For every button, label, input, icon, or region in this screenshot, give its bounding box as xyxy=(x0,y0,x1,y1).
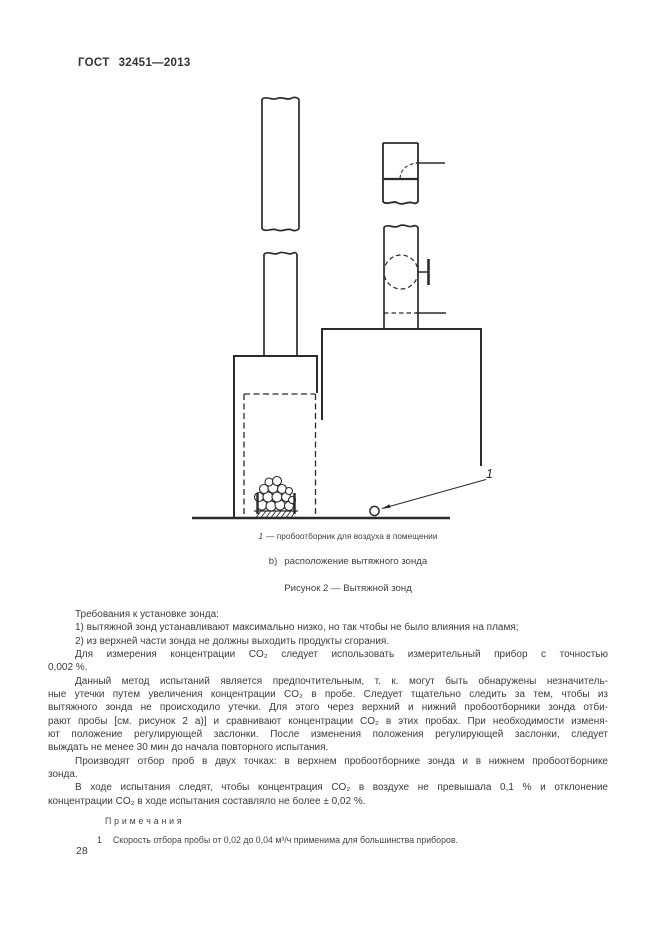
callout-arrow xyxy=(381,480,486,510)
figure-2b-drawing: 1 xyxy=(160,85,520,605)
basket-tray xyxy=(254,511,298,518)
figure-key-text: — пробоотборник для воздуха в помещении xyxy=(266,531,437,541)
body-line: зонда. xyxy=(48,768,608,781)
body-line: выждать не менее 30 мин до начала повтор… xyxy=(48,741,608,754)
room-air-sampler-circle xyxy=(370,506,379,515)
pebbles xyxy=(255,477,296,512)
chimney-upper-segment xyxy=(262,97,299,230)
body-line: концентрации CO₂ в ходе испытания состав… xyxy=(48,795,608,808)
body-line: Производят отбор проб в двух точках: в в… xyxy=(48,755,608,768)
damper-handle xyxy=(418,259,429,285)
figure-sublabel-title: расположение вытяжного зонда xyxy=(284,556,427,567)
body-line: 0,002 %. xyxy=(48,661,608,674)
body-line: Для измерения концентрации CO₂ следует и… xyxy=(48,648,608,661)
figure-key: 1— пробоотборник для воздуха в помещении xyxy=(88,531,608,541)
body-line: вытяжного зонда не происходило утечки. Д… xyxy=(48,701,608,714)
body-line: В ходе испытания следят, чтобы концентра… xyxy=(48,781,608,794)
chimney-lower-segment xyxy=(264,252,297,356)
body-line: 1) вытяжной зонд устанавливают максималь… xyxy=(48,621,608,634)
figure-caption: Рисунок 2 — Вытяжной зонд xyxy=(88,583,608,594)
notes-heading: П р и м е ч а н и я xyxy=(105,815,608,827)
fire-basket xyxy=(254,477,298,518)
standard-label: ГОСТ xyxy=(78,57,110,69)
figure-sublabel: b)расположение вытяжного зонда xyxy=(88,556,608,567)
page-number: 28 xyxy=(76,845,88,857)
document-page: ГОСТ32451—2013 xyxy=(0,0,661,936)
figure-key-number: 1 xyxy=(259,531,264,541)
note-text: Скорость отбора пробы от 0,02 до 0,04 м³… xyxy=(113,835,458,845)
body-line: Данный метод испытаний является предпочт… xyxy=(48,675,608,688)
standard-number: 32451—2013 xyxy=(119,57,191,69)
exhaust-duct-upper xyxy=(383,143,418,204)
body-text: Требования к установке зонда: 1) вытяжно… xyxy=(48,608,608,846)
note-item: 1Скорость отбора пробы от 0,02 до 0,04 м… xyxy=(97,834,608,846)
body-line: Требования к установке зонда: xyxy=(48,608,608,621)
callout-label: 1 xyxy=(486,467,493,481)
upper-sampling-probe xyxy=(400,163,445,179)
body-line: ют положение регулирующей заслонки. Посл… xyxy=(48,728,608,741)
figure-sublabel-letter: b) xyxy=(269,556,278,567)
notes-section: П р и м е ч а н и я 1Скорость отбора про… xyxy=(48,815,608,846)
running-header: ГОСТ32451—2013 xyxy=(78,57,191,69)
damper-disc-dashed xyxy=(384,255,418,289)
body-line: рают пробы [см. рисунок 2 а)] и сравнива… xyxy=(48,715,608,728)
body-line: 2) из верхней части зонда не должны выхо… xyxy=(48,635,608,648)
note-number: 1 xyxy=(97,835,102,845)
exhaust-hood xyxy=(322,328,481,466)
body-line: ные утечки путем увеличения концентрации… xyxy=(48,688,608,701)
